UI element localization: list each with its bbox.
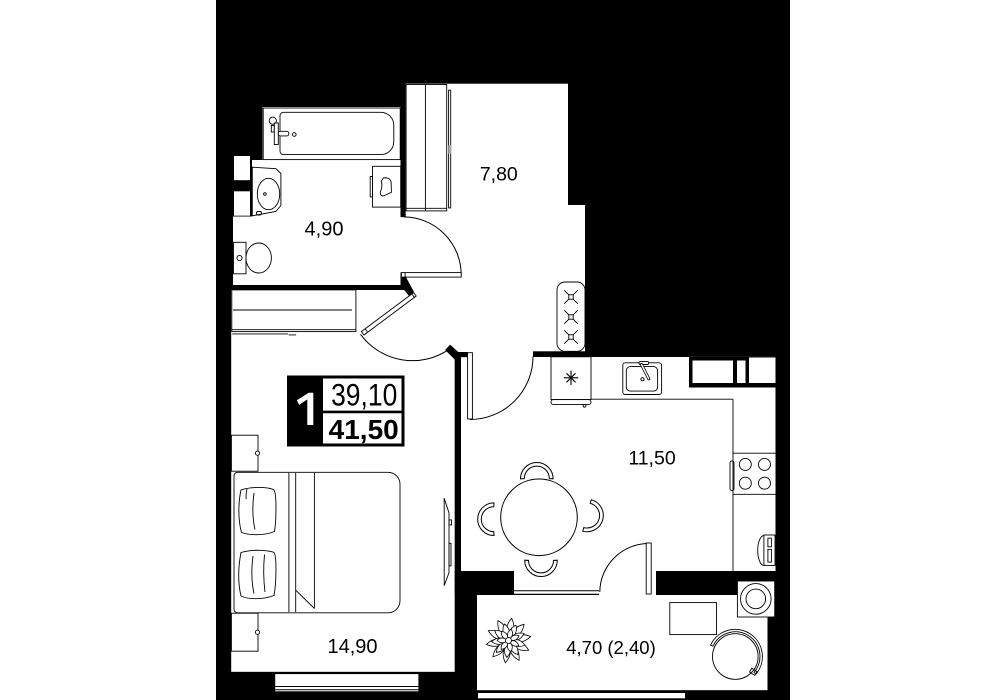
svg-text:4,70 (2,40): 4,70 (2,40) xyxy=(566,637,655,658)
svg-text:14,90: 14,90 xyxy=(327,636,377,658)
svg-text:41,50: 41,50 xyxy=(329,414,399,445)
svg-text:39,10: 39,10 xyxy=(331,378,397,413)
svg-text:11,50: 11,50 xyxy=(628,447,676,469)
svg-text:7,80: 7,80 xyxy=(480,164,518,186)
svg-text:4,90: 4,90 xyxy=(305,218,344,240)
